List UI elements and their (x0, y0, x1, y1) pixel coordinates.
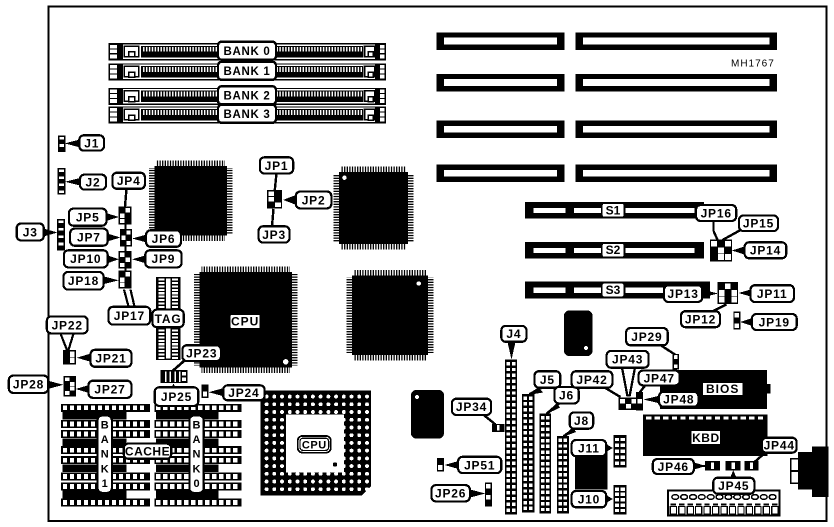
svg-text:JP27: JP27 (94, 383, 125, 397)
svg-text:JP13: JP13 (667, 287, 698, 301)
svg-text:JP45: JP45 (718, 479, 749, 493)
svg-text:JP29: JP29 (631, 330, 662, 344)
svg-text:JP17: JP17 (114, 309, 145, 323)
svg-text:J11: J11 (578, 442, 600, 456)
svg-text:J3: J3 (23, 225, 38, 239)
svg-text:JP5: JP5 (76, 211, 100, 225)
svg-text:JP28: JP28 (13, 378, 44, 392)
svg-text:JP7: JP7 (77, 231, 101, 245)
svg-text:JP22: JP22 (52, 318, 83, 332)
svg-text:JP14: JP14 (750, 244, 781, 258)
svg-text:JP1: JP1 (265, 159, 289, 173)
svg-text:MH1767: MH1767 (731, 59, 775, 70)
svg-text:JP2: JP2 (302, 193, 326, 207)
svg-text:JP3: JP3 (262, 228, 286, 242)
svg-text:JP9: JP9 (152, 252, 176, 266)
svg-text:KBD: KBD (692, 431, 720, 445)
svg-text:CPU: CPU (231, 315, 259, 329)
svg-text:JP24: JP24 (228, 386, 259, 400)
svg-text:JP26: JP26 (435, 487, 466, 501)
svg-text:JP47: JP47 (644, 371, 675, 385)
svg-text:BANK1: BANK1 (101, 420, 109, 490)
svg-text:JP6: JP6 (152, 232, 176, 246)
svg-text:JP18: JP18 (68, 274, 99, 288)
svg-text:J1: J1 (84, 136, 99, 150)
svg-text:J10: J10 (578, 493, 600, 507)
svg-text:JP10: JP10 (70, 252, 101, 266)
svg-text:CACHE: CACHE (125, 445, 170, 459)
svg-text:JP42: JP42 (576, 373, 607, 387)
svg-text:BANK 2: BANK 2 (223, 91, 270, 103)
svg-text:BANK 3: BANK 3 (223, 109, 270, 121)
svg-text:JP46: JP46 (658, 460, 689, 474)
svg-text:JP44: JP44 (764, 439, 795, 453)
svg-text:BANK0: BANK0 (193, 420, 201, 490)
svg-text:JP48: JP48 (663, 393, 694, 407)
svg-text:JP19: JP19 (759, 315, 790, 329)
svg-text:S2: S2 (606, 243, 621, 257)
svg-text:J6: J6 (559, 389, 574, 403)
svg-text:JP23: JP23 (186, 347, 217, 361)
svg-text:JP4: JP4 (117, 174, 141, 188)
svg-text:S1: S1 (606, 203, 621, 217)
svg-text:JP43: JP43 (612, 353, 643, 367)
svg-text:BANK 0: BANK 0 (223, 46, 270, 58)
svg-text:J2: J2 (86, 176, 101, 190)
svg-text:J8: J8 (574, 414, 589, 428)
svg-text:TAG: TAG (155, 312, 182, 326)
svg-text:CPU: CPU (302, 439, 327, 451)
svg-text:BANK 1: BANK 1 (223, 66, 270, 78)
svg-text:S3: S3 (606, 283, 621, 297)
svg-text:JP21: JP21 (95, 352, 126, 366)
svg-text:JP34: JP34 (456, 400, 487, 414)
svg-text:JP11: JP11 (757, 287, 788, 301)
svg-text:JP15: JP15 (743, 217, 774, 231)
svg-text:J5: J5 (540, 373, 555, 387)
svg-text:JP25: JP25 (161, 390, 192, 404)
svg-text:JP16: JP16 (701, 206, 732, 220)
svg-text:J4: J4 (506, 327, 521, 341)
svg-text:JP12: JP12 (685, 313, 716, 327)
svg-text:BIOS: BIOS (706, 382, 739, 396)
svg-text:JP51: JP51 (464, 458, 495, 472)
